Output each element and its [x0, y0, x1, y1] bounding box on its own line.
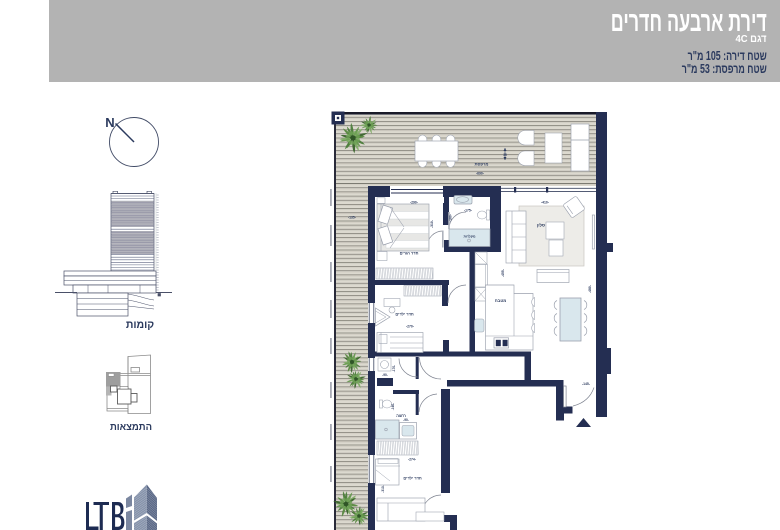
svg-text:מטבח: מטבח — [495, 298, 507, 303]
svg-text:-690-: -690- — [476, 172, 484, 176]
svg-text:35: 35 — [503, 153, 507, 157]
svg-text:חדר הורים: חדר הורים — [400, 251, 419, 256]
svg-text:-270-: -270- — [406, 325, 414, 329]
svg-text:חדר ילדים: חדר ילדים — [403, 476, 422, 481]
svg-text:-480-: -480- — [588, 285, 592, 293]
svg-text:-160-: -160- — [391, 403, 395, 410]
svg-text:-310-: -310- — [430, 220, 434, 228]
svg-text:חדר ילדים: חדר ילדים — [395, 312, 414, 317]
svg-text:N: N — [105, 115, 114, 130]
svg-text:-170-: -170- — [392, 365, 396, 372]
svg-text:סלון: סלון — [537, 223, 545, 228]
svg-text:-145-: -145- — [582, 382, 590, 386]
svg-text:-410-: -410- — [541, 201, 549, 205]
svg-text:מרפסת: מרפסת — [475, 162, 489, 167]
svg-text:-310-: -310- — [381, 485, 385, 492]
svg-text:מקלחת: מקלחת — [463, 235, 475, 239]
svg-text:-455-: -455- — [501, 269, 505, 277]
svg-text:-135-: -135- — [348, 216, 356, 220]
svg-text:-90-: -90- — [403, 418, 409, 422]
svg-text:-90-: -90- — [382, 373, 388, 377]
svg-text:-290-: -290- — [410, 201, 418, 205]
svg-text:-180-: -180- — [449, 214, 453, 222]
svg-text:קומות: קומות — [126, 319, 154, 331]
svg-text:-175-: -175- — [464, 209, 472, 213]
svg-text:-274-: -274- — [408, 458, 416, 462]
svg-text:התמצאות: התמצאות — [110, 422, 152, 433]
